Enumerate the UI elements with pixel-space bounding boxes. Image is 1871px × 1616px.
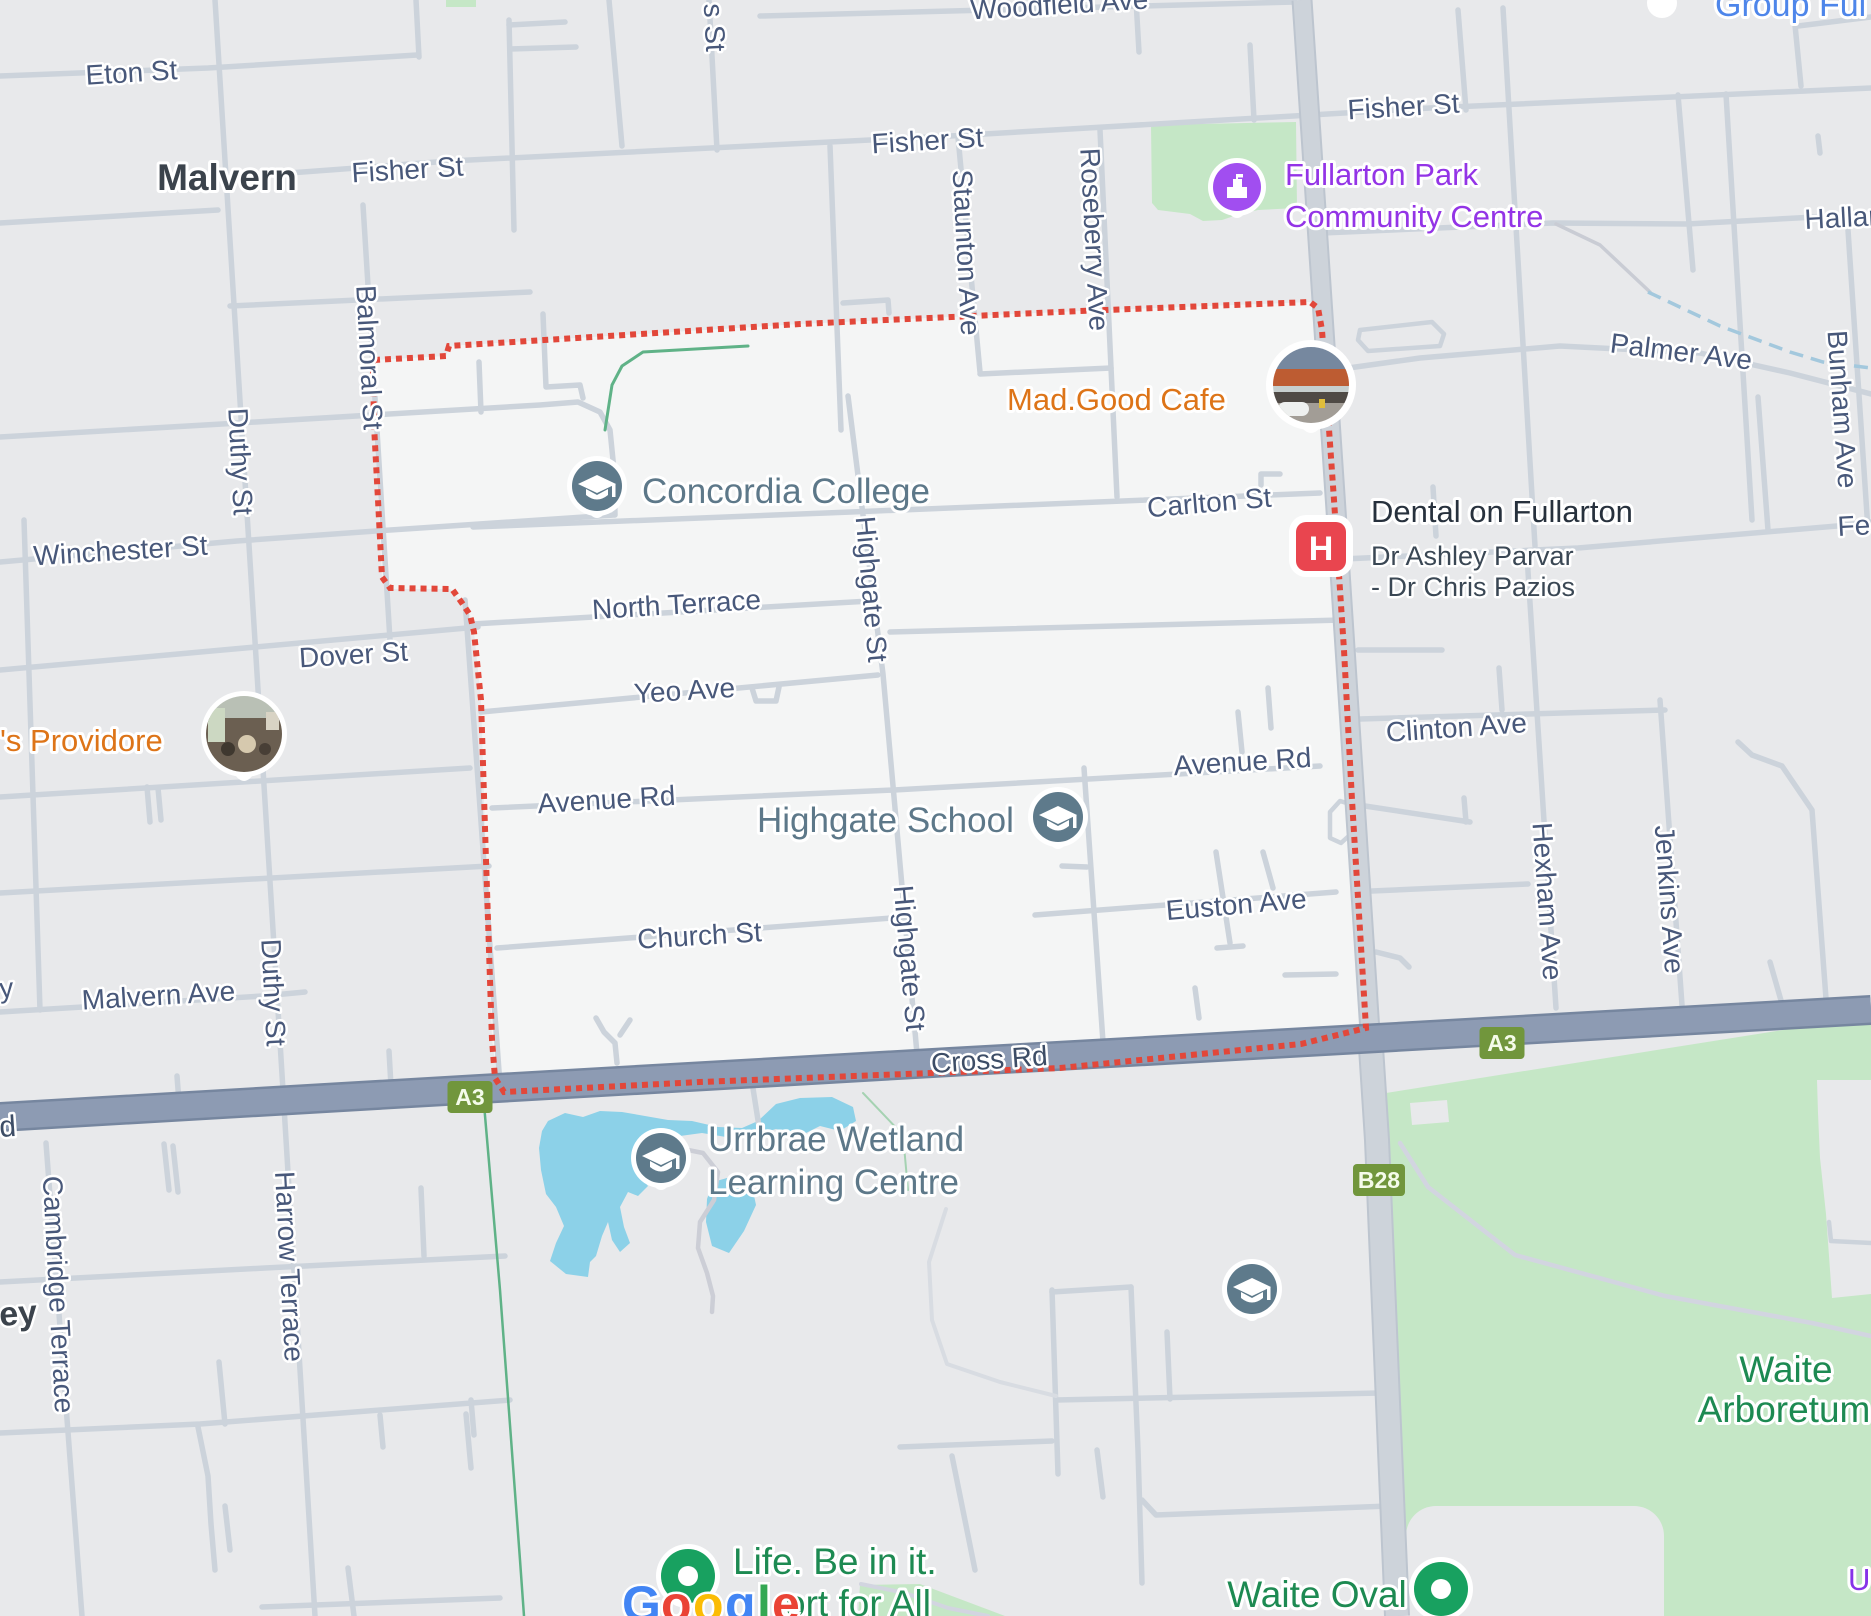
svg-text:Mad.Good Cafe: Mad.Good Cafe <box>1007 382 1226 417</box>
svg-text:ey: ey <box>0 1293 38 1334</box>
svg-text:Duthy St: Duthy St <box>222 407 259 516</box>
svg-text:e: e <box>772 1576 800 1616</box>
svg-text:B28: B28 <box>1358 1167 1400 1193</box>
svg-text:Malvern: Malvern <box>157 157 297 198</box>
svg-text:Fullarton Park: Fullarton Park <box>1285 157 1478 192</box>
svg-text:Highgate School: Highgate School <box>757 801 1014 840</box>
svg-text:Group Ful: Group Ful <box>1715 0 1866 24</box>
svg-text:Waite: Waite <box>1739 1349 1832 1390</box>
svg-text:- Dr Chris Pazios: - Dr Chris Pazios <box>1371 572 1575 602</box>
svg-text:A3: A3 <box>455 1084 484 1110</box>
svg-text:Dental on Fullarton: Dental on Fullarton <box>1371 494 1633 529</box>
svg-text:Community Centre: Community Centre <box>1285 199 1543 234</box>
svg-text:G: G <box>622 1576 661 1616</box>
svg-text:Waite Oval: Waite Oval <box>1227 1574 1407 1615</box>
svg-text:'s Providore: 's Providore <box>0 723 163 758</box>
svg-text:Arboretum: Arboretum <box>1698 1389 1871 1430</box>
svg-text:H: H <box>1309 530 1334 568</box>
svg-text:Learning Centre: Learning Centre <box>708 1163 959 1202</box>
svg-text:Concordia College: Concordia College <box>642 472 930 511</box>
svg-text:A3: A3 <box>1487 1030 1516 1056</box>
svg-text:Duthy St: Duthy St <box>255 938 292 1047</box>
svg-text:o: o <box>693 1576 724 1616</box>
svg-text:o: o <box>661 1576 692 1616</box>
svg-text:l: l <box>757 1576 771 1616</box>
svg-text:s St: s St <box>698 3 731 53</box>
svg-text:d: d <box>0 1110 17 1144</box>
svg-text:Urrbrae Wetland: Urrbrae Wetland <box>708 1120 964 1159</box>
svg-text:Fe: Fe <box>1837 509 1871 542</box>
svg-text:U: U <box>1848 1562 1870 1597</box>
svg-text:Eton St: Eton St <box>85 54 179 91</box>
svg-text:Yeo Ave: Yeo Ave <box>633 672 736 709</box>
svg-text:Dr Ashley Parvar: Dr Ashley Parvar <box>1371 541 1574 571</box>
svg-text:y: y <box>0 972 14 1004</box>
svg-text:g: g <box>725 1576 756 1616</box>
svg-text:Hallam: Hallam <box>1804 199 1871 235</box>
svg-text:ort for All: ort for All <box>785 1583 931 1616</box>
